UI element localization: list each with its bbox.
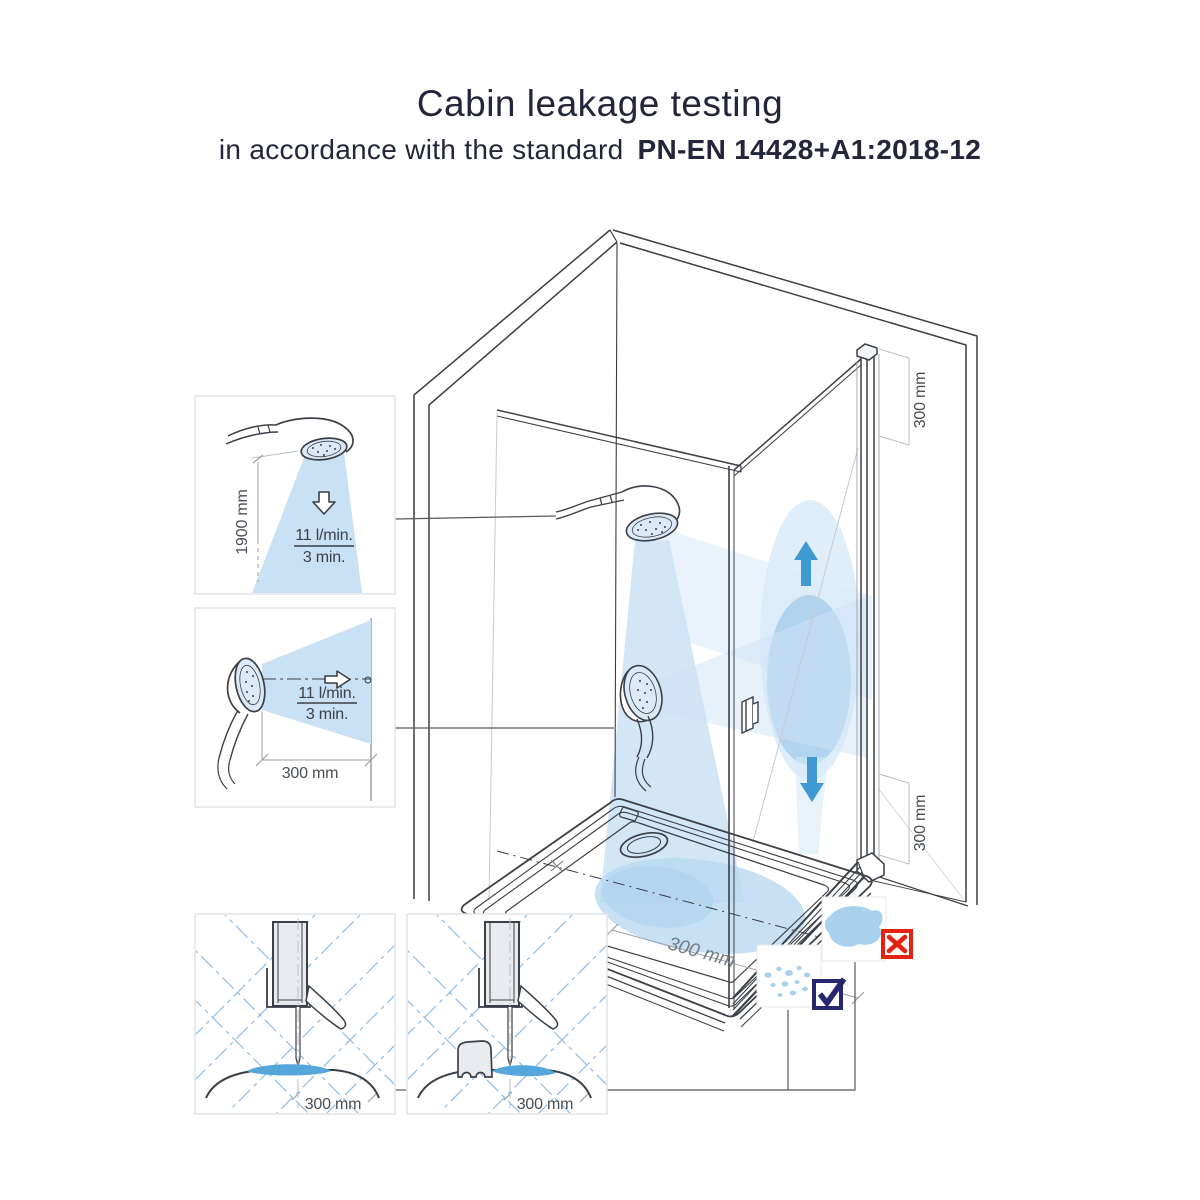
door-bottom-dim-label: 300 mm [912,795,929,852]
door-top-edge [734,359,861,470]
inset4-sponge-block [458,1041,492,1077]
x-mark-icon [883,931,911,957]
door-top-dim-label: 300 mm [912,372,929,429]
door-top-dim-bracket [879,349,909,445]
infographic-canvas: Cabin leakage testing in accordance with… [0,0,1200,1200]
inset-seal-detail-plain: 300 mm [170,900,420,1130]
inset2-flow-label: 11 l/min. [298,685,355,702]
inset-seal-detail-with-sponge: 300 mm [382,900,632,1130]
upper-shower-head [556,486,680,545]
door-bottom-dim-bracket [879,774,909,864]
left-wall-inner-edge [429,242,617,901]
inset2-duration-label: 3 min. [306,706,348,723]
side-glass-top-edge [497,410,741,466]
inset1-flow-label: 11 l/min. [295,527,352,544]
upper-hose [556,501,591,519]
connector-inset1 [395,516,556,519]
inset-horizontal-spray-test: 11 l/min. 3 min. 300 mm [195,608,395,807]
left-wall-outer-edge [414,230,610,899]
upper-handle [589,492,624,507]
inset-overhead-spray-test: 1900 mm 11 l/min. 3 min. [195,396,395,594]
inset2-distance-label: 300 mm [282,765,339,782]
inset1-flow-fraction: 11 l/min. 3 min. [294,527,354,566]
wall-corner-line [615,243,617,797]
diagram-svg: 300 mm 300 mm 300 mm [0,0,1200,1200]
side-glass-back-edge [489,412,497,900]
inset1-height-label: 1900 mm [234,489,251,554]
check-mark-icon [814,979,844,1008]
inset4-distance-label: 300 mm [517,1096,574,1113]
inset1-duration-label: 3 min. [303,549,345,566]
spray-fills [589,500,872,966]
inset3-distance-label: 300 mm [305,1096,362,1113]
